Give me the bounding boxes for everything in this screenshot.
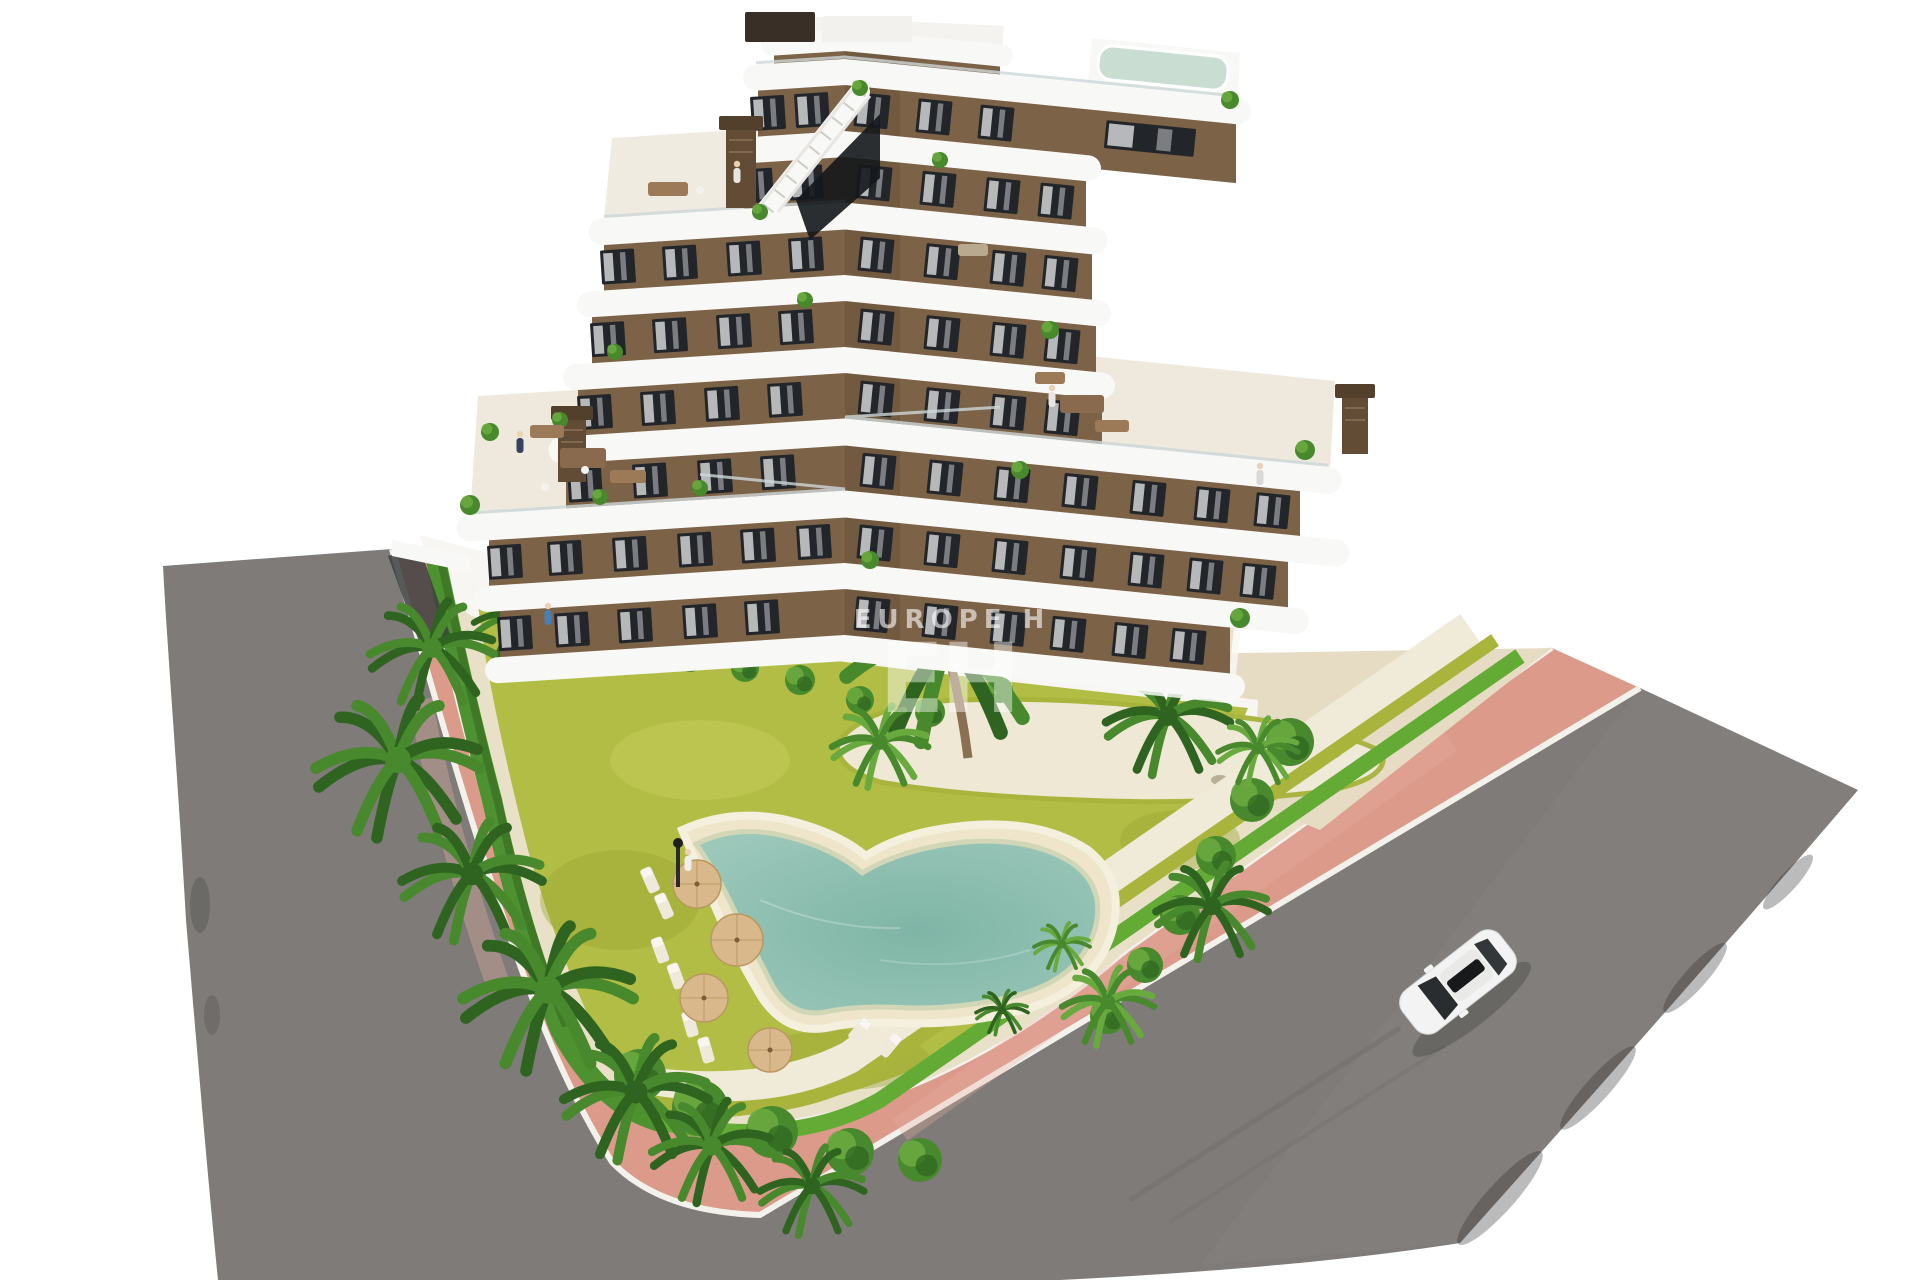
window bbox=[989, 250, 1026, 287]
window bbox=[923, 531, 960, 568]
balcony-band bbox=[772, 40, 1002, 56]
window bbox=[1239, 563, 1276, 600]
window bbox=[1127, 551, 1164, 588]
window bbox=[1059, 545, 1096, 582]
window bbox=[919, 171, 956, 208]
window bbox=[662, 245, 698, 281]
window bbox=[1111, 622, 1148, 659]
person bbox=[685, 849, 692, 871]
window bbox=[923, 315, 960, 352]
window bbox=[915, 98, 952, 135]
window bbox=[1186, 557, 1223, 594]
render-canvas: EUROPE H EH bbox=[0, 0, 1920, 1280]
window bbox=[923, 243, 960, 280]
window bbox=[857, 236, 894, 273]
window bbox=[926, 459, 963, 496]
window bbox=[1253, 492, 1290, 529]
bush bbox=[1127, 947, 1163, 983]
window bbox=[767, 382, 803, 418]
window bbox=[991, 538, 1028, 575]
window bbox=[704, 386, 740, 422]
window bbox=[1193, 486, 1230, 523]
parasol bbox=[680, 974, 728, 1022]
window bbox=[1061, 473, 1098, 510]
window bbox=[547, 540, 583, 576]
person bbox=[734, 161, 741, 183]
parasol bbox=[711, 914, 763, 966]
window bbox=[677, 532, 713, 568]
window bbox=[857, 380, 894, 417]
window bbox=[1049, 616, 1086, 653]
window bbox=[652, 317, 688, 353]
window bbox=[617, 607, 653, 643]
watermark-monogram: EH bbox=[879, 623, 1017, 735]
window bbox=[1169, 628, 1206, 665]
window bbox=[682, 603, 718, 639]
window bbox=[788, 236, 824, 272]
window bbox=[554, 611, 590, 647]
window bbox=[600, 248, 636, 284]
window bbox=[740, 528, 776, 564]
window bbox=[977, 104, 1014, 141]
window bbox=[983, 177, 1020, 214]
window bbox=[989, 322, 1026, 359]
window bbox=[989, 394, 1026, 431]
bush bbox=[785, 665, 815, 695]
window bbox=[1037, 182, 1074, 219]
window bbox=[497, 615, 533, 651]
window bbox=[923, 387, 960, 424]
window bbox=[612, 536, 648, 572]
window bbox=[1041, 255, 1078, 292]
bush bbox=[898, 1138, 942, 1182]
window bbox=[487, 544, 523, 580]
window bbox=[857, 308, 894, 345]
window bbox=[859, 453, 896, 490]
building bbox=[460, 12, 1375, 687]
window bbox=[640, 390, 676, 426]
window bbox=[796, 524, 832, 560]
parasol bbox=[748, 1028, 792, 1072]
window bbox=[1129, 480, 1166, 517]
person bbox=[1049, 385, 1056, 407]
person bbox=[545, 603, 552, 625]
parasol bbox=[673, 860, 721, 908]
architectural-render: EUROPE H EH bbox=[0, 0, 1920, 1280]
window bbox=[778, 309, 814, 345]
person bbox=[1257, 463, 1264, 485]
person bbox=[517, 431, 524, 453]
window bbox=[716, 313, 752, 349]
window bbox=[726, 240, 762, 276]
window bbox=[744, 599, 780, 635]
